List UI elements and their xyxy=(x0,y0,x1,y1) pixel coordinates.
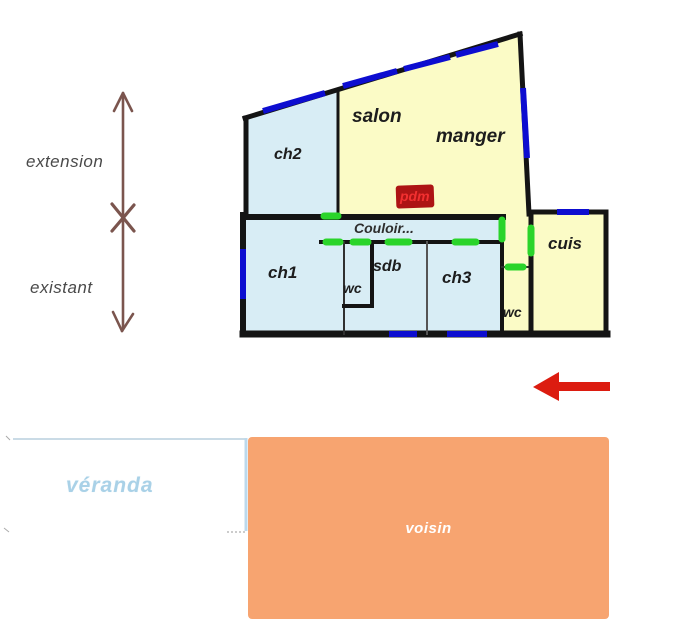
room-label-manger: manger xyxy=(436,126,505,148)
room-label-salon: salon xyxy=(352,106,402,128)
couloir-label: Couloir... xyxy=(354,220,414,236)
wc-right-label: wc xyxy=(503,304,522,320)
plan-drawing xyxy=(0,0,684,629)
room-label-cuis: cuis xyxy=(548,234,582,254)
extension-label: extension xyxy=(26,152,103,172)
existant-label: existant xyxy=(30,278,93,298)
room-cuis-floor xyxy=(531,212,607,334)
pdm-label: pdm xyxy=(400,188,430,204)
floor-plan-sketch: extension existant ch2 salon manger pdm … xyxy=(0,0,684,629)
wc-left-label: wc xyxy=(343,280,362,296)
voisin-parcel xyxy=(248,437,609,619)
extension-axis-arrow xyxy=(112,93,134,331)
room-label-ch1: ch1 xyxy=(268,263,297,283)
room-label-ch2: ch2 xyxy=(274,146,302,164)
room-fills xyxy=(243,33,607,334)
entrance-arrow xyxy=(533,372,610,401)
room-label-sdb: sdb xyxy=(373,258,401,276)
veranda-label: véranda xyxy=(66,474,154,498)
room-label-ch3: ch3 xyxy=(442,268,471,288)
